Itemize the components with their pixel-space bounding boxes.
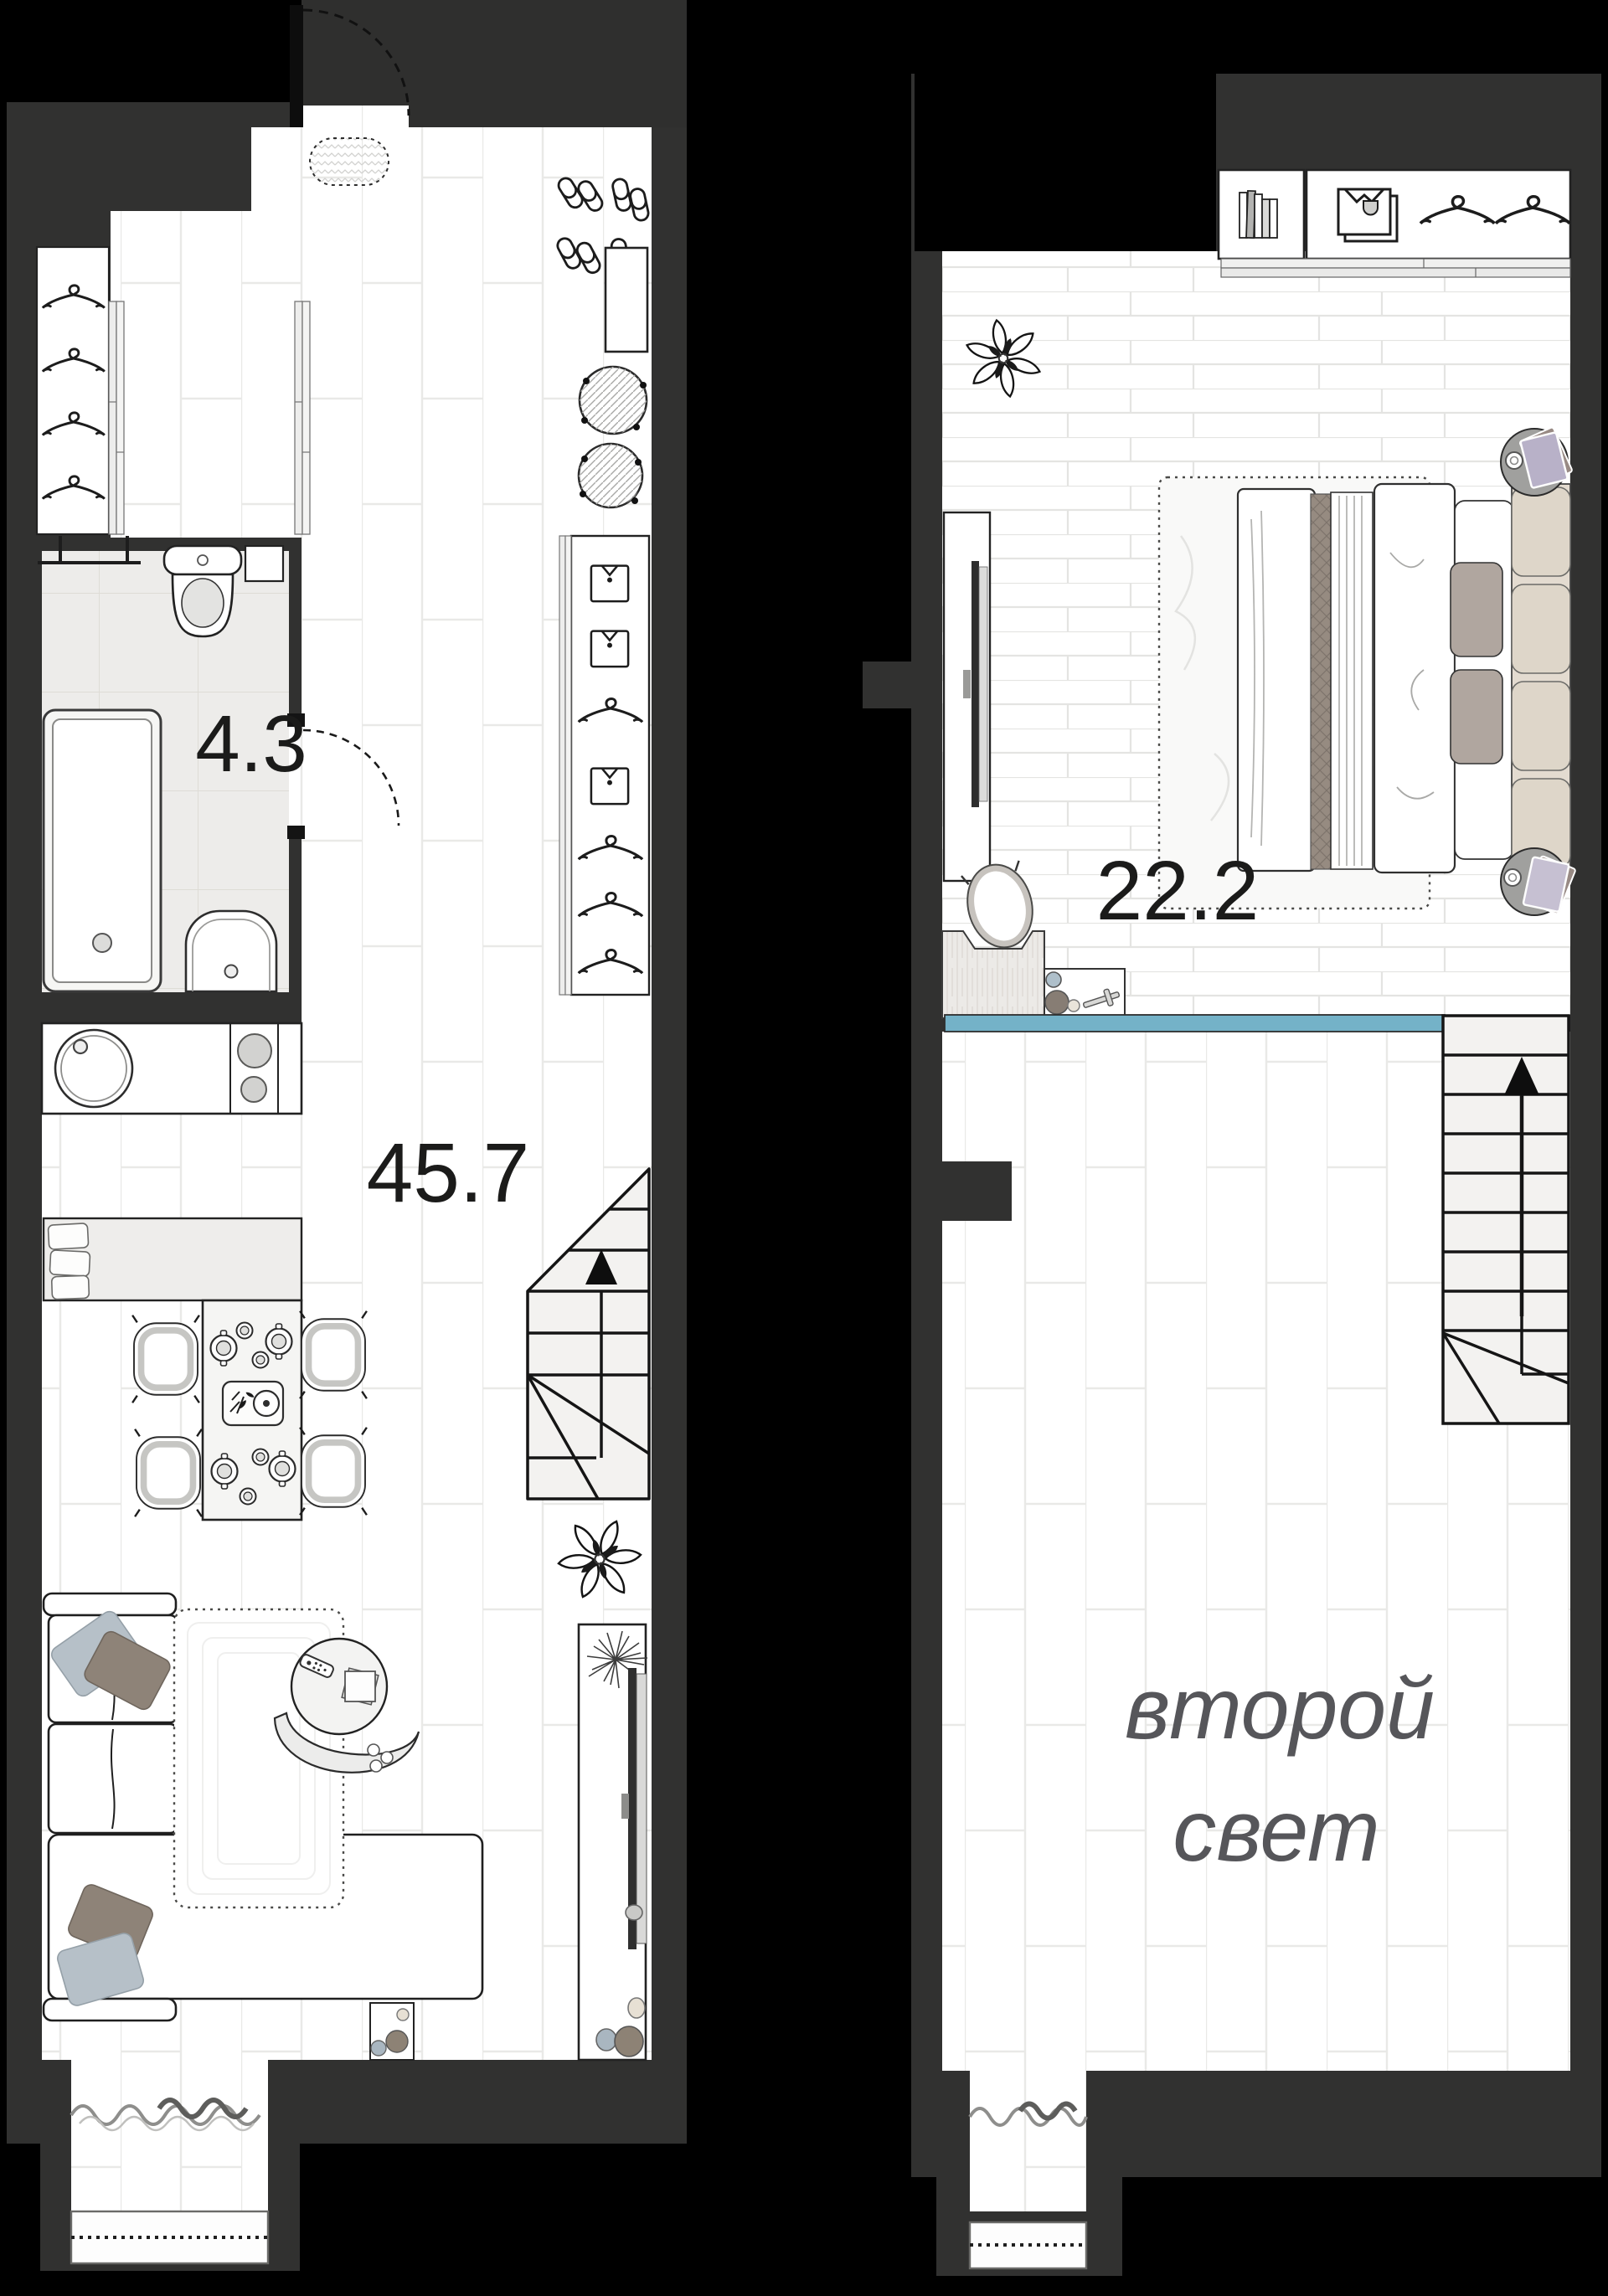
wall-pier-outer	[863, 662, 911, 708]
bathtub-icon	[44, 710, 161, 991]
bench-cushion	[52, 1275, 90, 1300]
floor-plan-level-1: 4.3 45.7	[7, 0, 687, 2271]
vase-icon	[615, 2026, 643, 2057]
doormat	[310, 138, 389, 185]
bed	[1238, 484, 1570, 874]
kitchen-counter	[42, 1023, 301, 1114]
bed-pillow	[1451, 563, 1502, 656]
bathroom-shelf	[245, 546, 283, 581]
shoe-cabinet	[606, 248, 647, 352]
shirt-icon	[591, 769, 628, 805]
pouf-icon	[579, 444, 642, 507]
floor-bay-l1	[71, 2060, 268, 2211]
side-table	[1044, 969, 1125, 1020]
bed-duvet	[1238, 489, 1315, 871]
chair-icon	[300, 1311, 367, 1399]
shirt-icon	[591, 631, 628, 667]
plate-icon	[253, 1449, 269, 1465]
vase-icon	[1045, 991, 1069, 1014]
floor-plan-screenshot: 4.3 45.7	[0, 0, 1608, 2296]
dining-bench	[44, 1218, 301, 1300]
cup-icon	[1504, 869, 1521, 886]
stairs-level-2	[1443, 1016, 1569, 1423]
bed-sheet	[1331, 492, 1373, 869]
chair-icon	[135, 1429, 202, 1517]
floor-plan-level-2: 22.2 второй свет	[863, 74, 1601, 2276]
tv-icon	[971, 561, 979, 807]
wardrobe-track	[1221, 259, 1570, 277]
glass-railing	[945, 1015, 1445, 1032]
wall-pier-inner	[911, 1161, 1012, 1221]
floor-threshold	[303, 106, 409, 131]
cup-icon	[1506, 452, 1523, 469]
bathroom-area-label: 4.3	[195, 699, 307, 789]
bench-cushion	[49, 1250, 90, 1276]
vase-icon	[1068, 1000, 1080, 1012]
vase-icon	[596, 2029, 616, 2051]
vase-icon	[628, 1998, 645, 2018]
decor-box	[370, 2003, 414, 2060]
bed-pillow	[1451, 670, 1502, 764]
kitchen-sink-icon	[55, 1030, 132, 1107]
hall-wardrobe-right	[559, 536, 649, 995]
washbasin-icon	[186, 911, 276, 991]
plate-icon	[253, 1352, 269, 1368]
bed-duvet	[1374, 484, 1455, 873]
dining-table	[203, 1300, 301, 1520]
floor-plan-canvas: 4.3 45.7	[0, 0, 1608, 2296]
window	[71, 2211, 268, 2263]
wardrobe-track	[109, 301, 124, 534]
shirt-icon	[591, 566, 628, 602]
chair-icon	[132, 1315, 199, 1403]
living-area-label: 45.7	[367, 1126, 530, 1220]
folded-shirt-icon	[1338, 189, 1397, 241]
bed-quilt-band	[1311, 494, 1331, 869]
pouf-icon	[580, 367, 647, 434]
bedroom-tv-console	[944, 512, 990, 881]
vase-icon	[1046, 972, 1061, 987]
vase-icon	[626, 1905, 642, 1920]
coffee-table	[291, 1639, 387, 1734]
void-recess	[915, 74, 1216, 251]
book-icon	[342, 1668, 379, 1705]
entry-door-leaf	[290, 5, 303, 127]
plate-icon	[240, 1489, 256, 1505]
bathroom-door-jamb	[287, 826, 305, 839]
plate-icon	[237, 1323, 253, 1339]
window	[970, 2222, 1086, 2268]
bed-headboard	[1512, 484, 1570, 874]
second-light-label-line2: свет	[1172, 1783, 1379, 1880]
chair-icon	[300, 1428, 367, 1516]
serving-tray-icon	[223, 1382, 283, 1425]
bench-cushion	[48, 1223, 88, 1249]
second-light-label-line1: второй	[1125, 1660, 1435, 1758]
hall-partition-track	[295, 301, 310, 534]
bedroom-bookcase	[1219, 170, 1304, 259]
bedroom-area-label: 22.2	[1096, 844, 1260, 938]
floor-bay-l2	[970, 2071, 1086, 2211]
tv-console	[579, 1624, 647, 2060]
